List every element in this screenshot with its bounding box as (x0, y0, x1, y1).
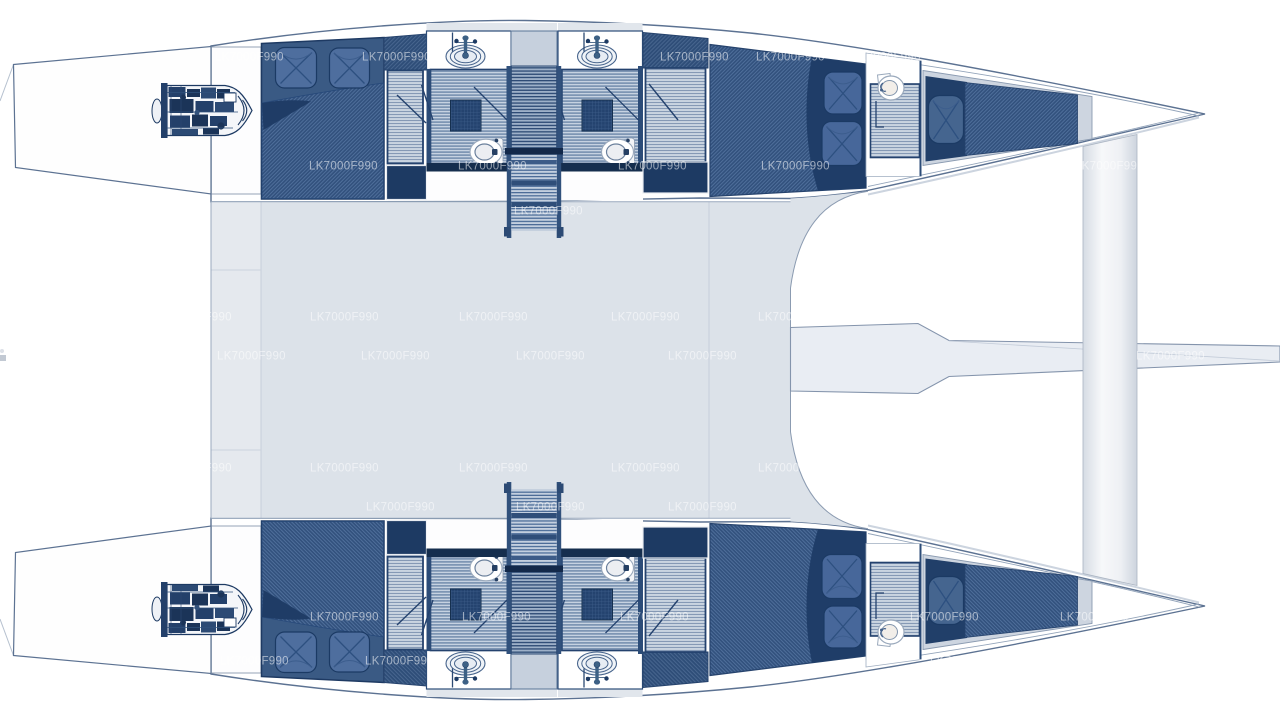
svg-text:LK7000F990: LK7000F990 (1210, 656, 1279, 668)
svg-text:LK7000F990: LK7000F990 (462, 612, 531, 624)
svg-text:LK7000F990: LK7000F990 (611, 312, 680, 324)
svg-text:LK7000F990: LK7000F990 (361, 351, 430, 363)
svg-text:LK7000F990: LK7000F990 (668, 502, 737, 514)
svg-text:LK7000F990: LK7000F990 (756, 52, 825, 64)
svg-text:LK7000F990: LK7000F990 (852, 52, 921, 64)
svg-text:LK7000F990: LK7000F990 (516, 351, 585, 363)
svg-text:LK7000F990: LK7000F990 (761, 161, 830, 173)
svg-text:LK7000F990: LK7000F990 (758, 312, 827, 324)
svg-text:LK7000F990: LK7000F990 (217, 351, 286, 363)
svg-text:LK7000F990: LK7000F990 (163, 463, 232, 475)
svg-text:LK7000F990: LK7000F990 (362, 52, 431, 64)
svg-text:LK7000F990: LK7000F990 (1060, 612, 1129, 624)
svg-text:LK7000F990: LK7000F990 (1170, 463, 1239, 475)
svg-text:LK7000F990: LK7000F990 (668, 351, 737, 363)
svg-text:LK7000F990: LK7000F990 (310, 312, 379, 324)
svg-text:LK7000F990: LK7000F990 (1218, 206, 1280, 218)
svg-text:LK7000F990: LK7000F990 (1218, 502, 1280, 514)
svg-text:LK7000F990: LK7000F990 (458, 161, 527, 173)
svg-text:LK7000F990: LK7000F990 (990, 502, 1059, 514)
svg-text:LK7000F990: LK7000F990 (514, 206, 583, 218)
svg-text:LK7000F990: LK7000F990 (611, 463, 680, 475)
svg-text:LK7000F990: LK7000F990 (215, 52, 284, 64)
svg-text:LK7000F990: LK7000F990 (310, 612, 379, 624)
svg-text:LK7000F990: LK7000F990 (910, 612, 979, 624)
svg-text:LK7000F990: LK7000F990 (1170, 312, 1239, 324)
svg-text:LK7000F990: LK7000F990 (620, 612, 689, 624)
svg-text:LK7000F990: LK7000F990 (310, 463, 379, 475)
svg-text:LK7000F990: LK7000F990 (660, 52, 729, 64)
svg-text:LK7000F990: LK7000F990 (618, 161, 687, 173)
svg-text:LK7000F990: LK7000F990 (309, 161, 378, 173)
svg-text:LK7000F990: LK7000F990 (758, 463, 827, 475)
svg-text:LK7000F990: LK7000F990 (220, 656, 289, 668)
svg-text:LK7000F990: LK7000F990 (163, 312, 232, 324)
svg-text:LK7000F990: LK7000F990 (459, 312, 528, 324)
svg-text:LK7000F990: LK7000F990 (459, 463, 528, 475)
svg-text:LK7000F990: LK7000F990 (516, 502, 585, 514)
svg-text:LK7000F990: LK7000F990 (1075, 161, 1144, 173)
svg-text:LK7000F990: LK7000F990 (930, 656, 999, 668)
svg-text:LK7000F990: LK7000F990 (365, 656, 434, 668)
svg-text:LK7000F990: LK7000F990 (1136, 351, 1205, 363)
svg-text:LK7000F990: LK7000F990 (366, 502, 435, 514)
